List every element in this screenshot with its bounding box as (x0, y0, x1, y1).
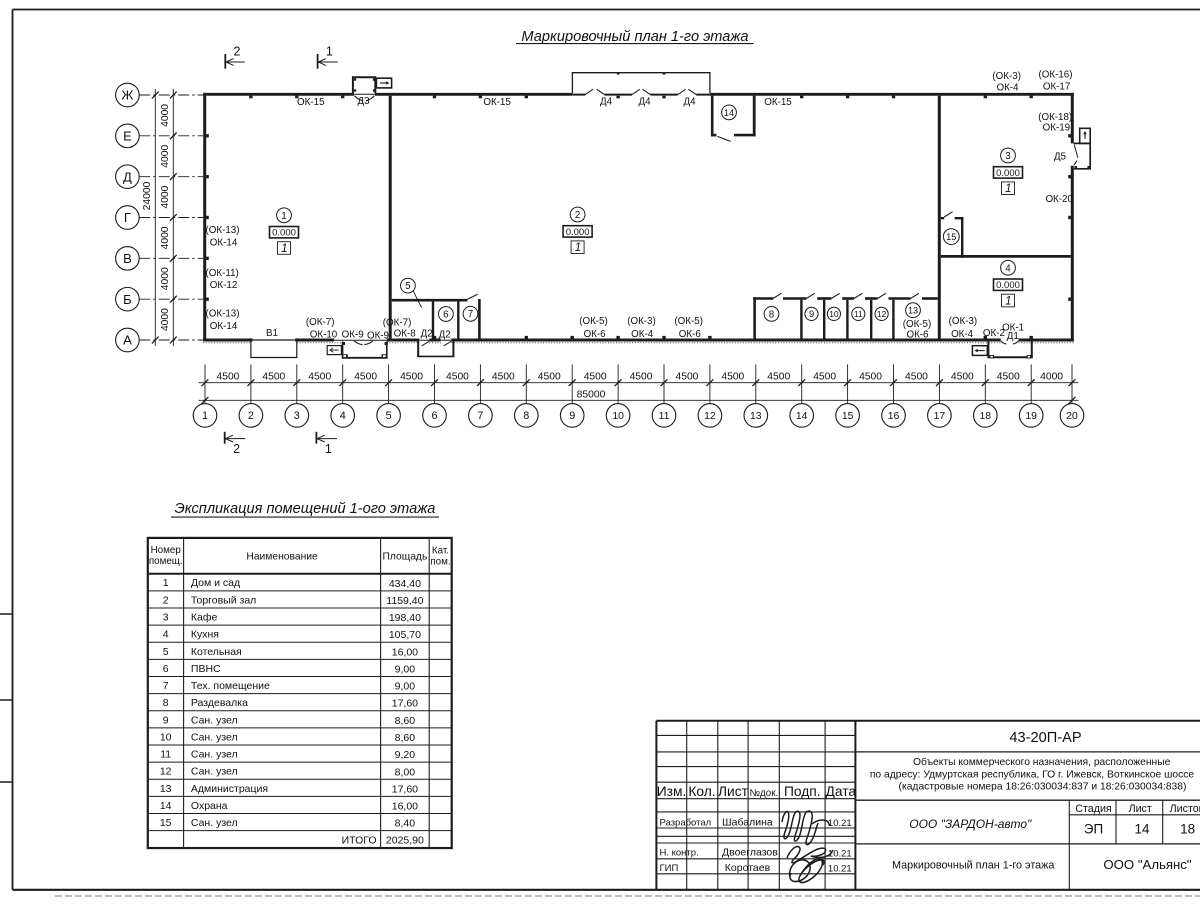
svg-text:43-20П-АР: 43-20П-АР (1009, 730, 1081, 746)
svg-text:4500: 4500 (721, 371, 744, 382)
svg-text:(ОК-18): (ОК-18) (1038, 112, 1072, 123)
svg-text:Д2: Д2 (421, 329, 433, 340)
svg-text:4000: 4000 (160, 145, 171, 168)
svg-text:0.000: 0.000 (996, 280, 1020, 291)
svg-text:Маркировочный план 1-го этажа: Маркировочный план 1-го этажа (521, 29, 748, 45)
svg-text:1: 1 (326, 44, 333, 58)
svg-text:10.21: 10.21 (828, 848, 852, 859)
svg-text:13: 13 (908, 306, 918, 316)
svg-text:Торговый зал: Торговый зал (191, 594, 256, 606)
svg-text:ОК-20: ОК-20 (1045, 194, 1073, 205)
svg-text:4500: 4500 (951, 371, 974, 382)
svg-text:2025,90: 2025,90 (386, 835, 424, 847)
svg-text:13: 13 (750, 411, 762, 422)
svg-text:ОК-14: ОК-14 (210, 321, 238, 332)
svg-text:пом.: пом. (430, 557, 450, 568)
svg-text:Номер: Номер (151, 545, 182, 556)
svg-text:5: 5 (386, 410, 392, 422)
svg-text:9,20: 9,20 (395, 749, 416, 761)
svg-text:8: 8 (163, 697, 169, 709)
svg-text:2: 2 (234, 44, 241, 58)
svg-text:ОК-10: ОК-10 (310, 330, 338, 341)
svg-text:4500: 4500 (997, 371, 1020, 382)
svg-text:ОК-9: ОК-9 (342, 329, 364, 340)
svg-text:Изм.: Изм. (657, 784, 687, 799)
svg-text:Охрана: Охрана (191, 800, 228, 812)
svg-text:4500: 4500 (400, 371, 423, 382)
svg-text:Сан. узел: Сан. узел (191, 817, 238, 829)
svg-text:Объекты коммерческого назначен: Объекты коммерческого назначения, распол… (913, 756, 1171, 768)
svg-text:Н. контр.: Н. контр. (660, 847, 699, 858)
svg-text:(ОК-13): (ОК-13) (206, 225, 240, 236)
svg-text:Е: Е (123, 128, 132, 143)
svg-text:14: 14 (796, 411, 808, 422)
svg-text:9,00: 9,00 (395, 681, 416, 693)
svg-text:Д: Д (123, 169, 132, 184)
svg-text:ОК-8: ОК-8 (394, 329, 417, 340)
svg-text:(ОК-13): (ОК-13) (206, 309, 240, 320)
svg-text:6: 6 (163, 663, 169, 675)
svg-text:1: 1 (1005, 295, 1011, 307)
svg-text:Коротаев: Коротаев (725, 862, 771, 874)
svg-text:12: 12 (704, 411, 716, 422)
svg-text:4500: 4500 (492, 371, 515, 382)
svg-text:1: 1 (163, 577, 169, 589)
svg-text:7: 7 (163, 680, 169, 692)
svg-text:ОК-12: ОК-12 (210, 280, 238, 291)
svg-text:2: 2 (163, 594, 169, 606)
svg-text:Д4: Д4 (683, 96, 696, 107)
svg-text:3: 3 (163, 611, 169, 623)
svg-text:8: 8 (769, 309, 775, 320)
svg-text:Наименование: Наименование (246, 552, 318, 563)
svg-text:Д5: Д5 (1054, 152, 1067, 163)
svg-text:1: 1 (202, 410, 208, 422)
svg-text:16,00: 16,00 (392, 801, 418, 813)
svg-text:Кухня: Кухня (191, 629, 219, 641)
svg-text:16: 16 (888, 411, 900, 422)
svg-text:4000: 4000 (160, 267, 171, 290)
svg-text:Сан. узел: Сан. узел (191, 714, 238, 726)
svg-text:18: 18 (1180, 821, 1195, 836)
svg-text:7: 7 (468, 309, 473, 320)
svg-text:Лист: Лист (718, 784, 749, 799)
svg-text:(ОК-7): (ОК-7) (306, 317, 335, 328)
svg-text:15: 15 (946, 232, 956, 242)
svg-text:8,40: 8,40 (395, 818, 416, 830)
svg-text:ОК-4: ОК-4 (996, 83, 1019, 94)
svg-text:8,00: 8,00 (395, 766, 416, 778)
svg-text:24000: 24000 (142, 181, 153, 210)
svg-text:20: 20 (1066, 411, 1078, 422)
svg-text:(ОК-11): (ОК-11) (206, 268, 239, 279)
svg-text:2: 2 (233, 442, 240, 456)
svg-text:ОК-15: ОК-15 (764, 97, 792, 108)
svg-text:ГИП: ГИП (660, 863, 679, 874)
svg-text:4500: 4500 (308, 371, 331, 382)
svg-text:Маркировочный план 1-го этажа: Маркировочный план 1-го этажа (892, 860, 1054, 872)
svg-text:6: 6 (443, 309, 449, 320)
svg-text:Д2: Д2 (439, 329, 451, 340)
svg-text:2: 2 (575, 210, 580, 221)
svg-text:19: 19 (1025, 411, 1037, 422)
svg-text:Дата: Дата (826, 784, 857, 799)
svg-text:10: 10 (612, 411, 624, 422)
svg-text:Кат.: Кат. (432, 545, 449, 556)
svg-text:7: 7 (477, 410, 483, 422)
svg-text:ОК-19: ОК-19 (1043, 123, 1071, 134)
svg-text:Тех. помещение: Тех. помещение (191, 680, 270, 692)
svg-text:4500: 4500 (216, 371, 239, 382)
svg-text:Площадь: Площадь (382, 552, 427, 563)
svg-text:ОК-14: ОК-14 (210, 238, 238, 249)
svg-text:105,70: 105,70 (389, 629, 421, 641)
svg-text:1: 1 (1005, 183, 1011, 195)
svg-text:Г: Г (124, 210, 131, 225)
svg-text:Дом и сад: Дом и сад (191, 577, 240, 589)
svg-text:3: 3 (294, 410, 300, 422)
svg-text:ОК-6: ОК-6 (584, 329, 607, 340)
svg-text:Д1: Д1 (1007, 331, 1019, 342)
svg-text:1: 1 (575, 242, 581, 254)
svg-text:Б: Б (123, 292, 132, 307)
svg-text:Ж: Ж (121, 88, 133, 103)
svg-text:Разработал: Разработал (660, 817, 712, 828)
svg-text:13: 13 (160, 783, 172, 795)
svg-text:Котельная: Котельная (191, 646, 242, 658)
svg-text:9: 9 (569, 410, 575, 422)
svg-text:ИТОГО: ИТОГО (342, 835, 377, 847)
svg-text:4500: 4500 (813, 371, 836, 382)
svg-text:15: 15 (842, 411, 854, 422)
svg-text:8,60: 8,60 (395, 732, 416, 744)
svg-text:4500: 4500 (859, 371, 882, 382)
svg-text:1: 1 (281, 243, 287, 255)
svg-text:А: А (123, 333, 132, 348)
svg-text:ОК-4: ОК-4 (631, 329, 654, 340)
svg-text:10: 10 (829, 309, 839, 319)
svg-text:Лист: Лист (1129, 803, 1152, 815)
svg-text:Раздевалка: Раздевалка (191, 697, 248, 709)
svg-text:Экспликация помещений 1-ого эт: Экспликация помещений 1-ого этажа (175, 501, 436, 517)
svg-text:Д4: Д4 (600, 96, 613, 107)
svg-text:(ОК-5): (ОК-5) (903, 319, 932, 330)
svg-text:14: 14 (724, 108, 734, 118)
svg-text:15: 15 (160, 817, 172, 829)
svg-text:1159,40: 1159,40 (386, 595, 423, 607)
svg-text:8: 8 (523, 410, 529, 422)
svg-text:4500: 4500 (767, 371, 790, 382)
svg-text:ОК-4: ОК-4 (951, 329, 974, 340)
svg-text:0.000: 0.000 (996, 168, 1020, 179)
svg-text:(ОК-3): (ОК-3) (949, 316, 978, 327)
svg-text:9,00: 9,00 (395, 663, 416, 675)
svg-text:12: 12 (877, 309, 887, 319)
svg-text:4: 4 (1005, 263, 1011, 274)
svg-text:9: 9 (809, 309, 814, 319)
svg-text:5: 5 (163, 646, 169, 658)
svg-text:2: 2 (248, 410, 254, 422)
svg-text:11: 11 (854, 309, 863, 319)
svg-text:Подп.: Подп. (784, 784, 821, 799)
svg-text:0.000: 0.000 (272, 228, 296, 239)
svg-text:17,60: 17,60 (392, 698, 418, 710)
svg-text:6: 6 (431, 410, 437, 422)
svg-text:17,60: 17,60 (392, 783, 418, 795)
svg-text:ООО "Альянс": ООО "Альянс" (1103, 857, 1191, 872)
svg-text:ОК-9: ОК-9 (367, 331, 389, 342)
svg-text:(ОК-3): (ОК-3) (627, 316, 656, 327)
svg-text:(ОК-3): (ОК-3) (992, 71, 1021, 82)
svg-text:4500: 4500 (584, 371, 607, 382)
svg-text:5: 5 (405, 281, 411, 292)
svg-text:85000: 85000 (577, 390, 606, 401)
svg-text:198,40: 198,40 (389, 612, 421, 624)
svg-text:3: 3 (1005, 151, 1011, 162)
svg-text:18: 18 (980, 411, 992, 422)
svg-text:14: 14 (160, 800, 172, 812)
svg-text:4: 4 (340, 410, 346, 422)
svg-text:4500: 4500 (630, 371, 653, 382)
svg-text:4500: 4500 (905, 371, 928, 382)
svg-text:Стадия: Стадия (1075, 803, 1112, 815)
svg-text:8,60: 8,60 (395, 715, 416, 727)
svg-text:4000: 4000 (160, 104, 171, 127)
svg-text:434,40: 434,40 (389, 578, 421, 590)
svg-text:ОК-15: ОК-15 (297, 97, 325, 108)
svg-text:В1: В1 (266, 328, 278, 339)
svg-text:9: 9 (163, 714, 169, 726)
svg-text:4000: 4000 (160, 226, 171, 249)
svg-text:(ОК-5): (ОК-5) (674, 316, 703, 327)
svg-text:4500: 4500 (354, 371, 377, 382)
svg-text:Кол.: Кол. (688, 784, 715, 799)
svg-text:4500: 4500 (538, 371, 561, 382)
svg-text:Сан. узел: Сан. узел (191, 766, 238, 778)
svg-text:ООО "ЗАРДОН-авто": ООО "ЗАРДОН-авто" (909, 817, 1032, 831)
svg-text:Кафе: Кафе (191, 611, 218, 623)
svg-text:Д3: Д3 (357, 96, 370, 107)
svg-text:4500: 4500 (446, 371, 469, 382)
svg-text:12: 12 (160, 766, 172, 778)
svg-text:ОК-15: ОК-15 (483, 97, 511, 108)
svg-text:11: 11 (659, 411, 670, 422)
svg-text:Администрация: Администрация (191, 783, 268, 795)
svg-text:В: В (123, 251, 132, 266)
svg-text:1: 1 (281, 211, 286, 222)
svg-text:4500: 4500 (675, 371, 698, 382)
svg-text:4000: 4000 (160, 185, 171, 208)
svg-text:помещ.: помещ. (149, 556, 183, 567)
svg-text:(ОК-7): (ОК-7) (383, 317, 412, 328)
svg-text:ОК-6: ОК-6 (906, 330, 929, 341)
svg-text:(ОК-16): (ОК-16) (1038, 69, 1072, 80)
svg-text:4000: 4000 (160, 308, 171, 331)
svg-text:1: 1 (325, 442, 332, 456)
svg-text:10: 10 (160, 731, 172, 743)
svg-text:Сан. узел: Сан. узел (191, 731, 238, 743)
svg-text:17: 17 (934, 411, 946, 422)
svg-text:4500: 4500 (262, 371, 285, 382)
svg-text:Шабалина: Шабалина (722, 816, 773, 828)
svg-text:14: 14 (1134, 821, 1150, 836)
svg-text:ПВНС: ПВНС (191, 663, 221, 675)
svg-text:(ОК-5): (ОК-5) (579, 316, 608, 327)
svg-text:16,00: 16,00 (392, 646, 418, 658)
svg-text:ЭП: ЭП (1084, 821, 1103, 836)
svg-text:Д4: Д4 (638, 96, 651, 107)
svg-text:4: 4 (163, 629, 169, 641)
svg-text:№док.: №док. (750, 788, 779, 799)
svg-text:10.21: 10.21 (828, 818, 852, 829)
svg-text:Листов: Листов (1170, 803, 1200, 815)
svg-text:ОК-17: ОК-17 (1043, 82, 1071, 93)
svg-text:ОК-6: ОК-6 (679, 329, 702, 340)
svg-text:4000: 4000 (1040, 371, 1063, 382)
svg-text:Сан. узел: Сан. узел (191, 749, 238, 761)
svg-text:11: 11 (160, 749, 171, 761)
svg-text:0.000: 0.000 (566, 227, 590, 238)
svg-text:Двоеглазов: Двоеглазов (722, 846, 778, 858)
svg-text:10.21: 10.21 (828, 864, 852, 875)
svg-text:по адресу: Удмуртская республи: по адресу: Удмуртская республика, ГО г. … (870, 768, 1195, 780)
svg-text:(кадастровые номера 18:26:0300: (кадастровые номера 18:26:030034:837 и 1… (899, 782, 1187, 793)
